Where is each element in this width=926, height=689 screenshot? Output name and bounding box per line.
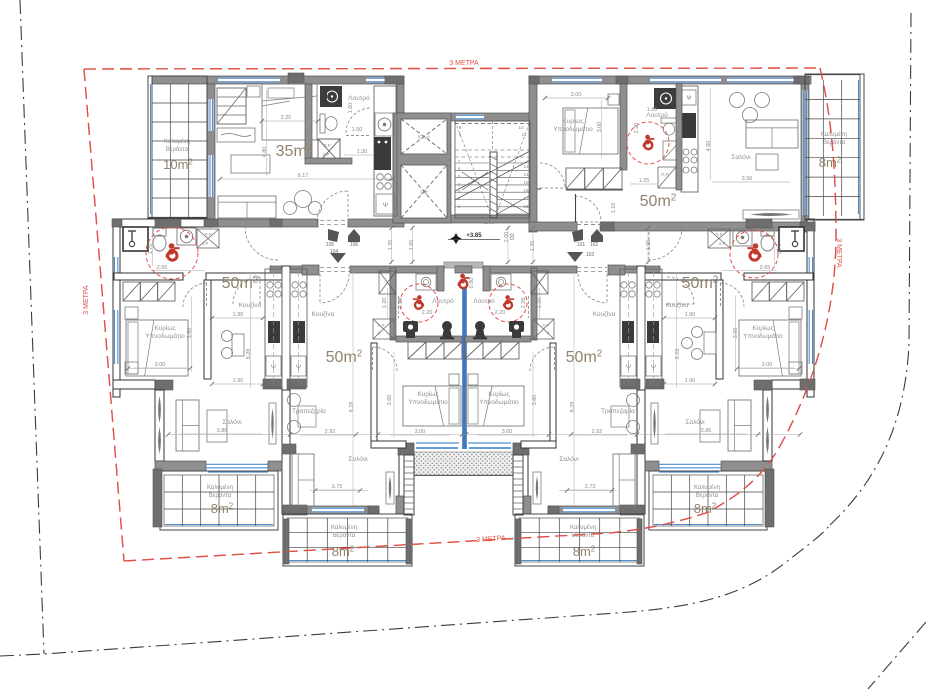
svg-text:104: 104: [330, 249, 339, 255]
svg-text:Καλυμένη: Καλυμένη: [207, 484, 233, 491]
svg-text:σ: σ: [547, 330, 550, 335]
svg-text:3.00: 3.00: [415, 429, 426, 435]
svg-text:6.17: 6.17: [298, 173, 309, 179]
svg-text:2.65: 2.65: [760, 265, 771, 271]
svg-text:18: 18: [523, 204, 529, 209]
svg-text:1.70: 1.70: [775, 244, 781, 255]
svg-text:Σαλόνι: Σαλόνι: [222, 418, 242, 426]
svg-text:σ.Ρ: σ.Ρ: [322, 152, 329, 157]
svg-text:0.80: 0.80: [469, 278, 475, 289]
svg-text:103: 103: [586, 252, 595, 258]
svg-text:8.29: 8.29: [570, 402, 576, 413]
svg-text:3.86: 3.86: [217, 428, 228, 434]
svg-text:17: 17: [523, 196, 529, 201]
svg-text:Καλυμένη: Καλυμένη: [331, 524, 357, 531]
svg-text:Κουζίνα: Κουζίνα: [239, 301, 262, 309]
svg-text:Π.Ρ: Π.Ρ: [716, 232, 723, 237]
svg-text:3.60: 3.60: [733, 328, 739, 339]
svg-text:3.00: 3.00: [597, 122, 603, 133]
svg-text:1.25: 1.25: [639, 178, 650, 184]
svg-text:4.80: 4.80: [706, 141, 712, 152]
svg-text:Υπνοδωμάτιο: Υπνοδωμάτιο: [553, 125, 593, 133]
svg-text:3.86: 3.86: [701, 428, 712, 434]
svg-text:8.29: 8.29: [349, 402, 355, 413]
svg-text:Υπνοδωμάτιο: Υπνοδωμάτιο: [479, 398, 519, 406]
svg-text:1.10: 1.10: [611, 203, 617, 214]
svg-text:101: 101: [577, 242, 586, 248]
svg-text:Κυρίως: Κυρίως: [154, 324, 175, 332]
svg-text:Λουτρό: Λουτρό: [348, 94, 370, 102]
svg-text:1.30: 1.30: [357, 149, 368, 155]
svg-text:3.00: 3.00: [502, 429, 513, 435]
svg-text:1.85: 1.85: [647, 107, 658, 113]
svg-text:2.65: 2.65: [157, 265, 168, 271]
svg-text:1.20: 1.20: [537, 298, 543, 309]
svg-text:Π.Ρ: Π.Ρ: [661, 172, 669, 177]
svg-text:σ.Ρ: σ.Ρ: [719, 241, 726, 246]
svg-text:8.28: 8.28: [675, 349, 681, 360]
svg-text:Π.Ρ: Π.Ρ: [323, 143, 331, 148]
svg-text:2.20: 2.20: [422, 310, 433, 316]
svg-text:1.70: 1.70: [148, 244, 154, 255]
svg-text:Lift: Lift: [420, 190, 428, 196]
svg-text:+3.85: +3.85: [466, 233, 482, 239]
svg-text:Λουτρό: Λουτρό: [432, 297, 454, 305]
svg-text:3.60: 3.60: [387, 395, 393, 406]
svg-text:Βεράντα: Βεράντα: [823, 139, 846, 146]
svg-text:Καλυμένη: Καλυμένη: [164, 138, 190, 145]
svg-text:2.92: 2.92: [325, 429, 336, 435]
svg-text:4.80: 4.80: [262, 147, 268, 158]
svg-text:Κυρίως: Κυρίως: [488, 390, 509, 398]
svg-text:Βεράντα: Βεράντα: [209, 492, 232, 499]
svg-text:3.73: 3.73: [585, 484, 596, 490]
svg-text:Ψ: Ψ: [383, 203, 388, 209]
svg-text:106: 106: [350, 242, 359, 248]
svg-text:1.50: 1.50: [352, 127, 363, 133]
svg-text:Σαλόνι: Σαλόνι: [685, 418, 705, 426]
svg-text:1.65: 1.65: [409, 240, 415, 251]
svg-text:Σαλόνι: Σαλόνι: [731, 153, 751, 161]
svg-text:Π.Ρ: Π.Ρ: [378, 323, 385, 328]
svg-text:Π.Ρ: Π.Ρ: [205, 232, 212, 237]
svg-text:1.35: 1.35: [388, 240, 394, 251]
svg-text:σ: σ: [378, 330, 381, 335]
svg-text:1.90: 1.90: [233, 312, 244, 318]
svg-text:3.60: 3.60: [187, 328, 193, 339]
svg-text:2.60: 2.60: [484, 220, 495, 226]
svg-text:11: 11: [522, 132, 527, 137]
svg-text:2.00: 2.00: [504, 232, 510, 243]
svg-text:16: 16: [523, 188, 529, 193]
svg-text:Κενό: Κενό: [418, 134, 430, 141]
svg-text:1.20: 1.20: [454, 265, 465, 271]
svg-text:Υπνοδωμάτιο: Υπνοδωμάτιο: [145, 332, 185, 340]
svg-text:1.90: 1.90: [685, 312, 696, 318]
svg-text:8.28: 8.28: [246, 349, 252, 360]
svg-text:2.28: 2.28: [521, 298, 527, 309]
svg-text:10: 10: [518, 125, 524, 130]
svg-text:3 ΜΕΤΡΑ: 3 ΜΕΤΡΑ: [449, 60, 479, 67]
svg-text:Κουζίνα: Κουζίνα: [666, 301, 689, 309]
svg-text:3 ΜΕΤΡΑ: 3 ΜΕΤΡΑ: [83, 285, 90, 315]
svg-text:Υπνοδωμάτιο: Υπνοδωμάτιο: [408, 398, 448, 406]
svg-text:Υπνοδωμάτιο: Υπνοδωμάτιο: [743, 332, 783, 340]
svg-text:Λουτρό: Λουτρό: [473, 297, 495, 305]
svg-text:3.00: 3.00: [571, 92, 582, 98]
svg-text:Ψ: Ψ: [686, 96, 691, 102]
svg-text:Βεράντα: Βεράντα: [696, 492, 719, 499]
svg-text:2.20: 2.20: [495, 310, 506, 316]
svg-text:13: 13: [523, 164, 529, 169]
svg-text:Σαλόνι: Σαλόνι: [559, 455, 579, 463]
svg-text:Κουζίνα: Κουζίνα: [593, 310, 616, 318]
svg-text:Π.Ρ: Π.Ρ: [543, 323, 550, 328]
svg-text:14: 14: [523, 172, 529, 177]
svg-text:2.92: 2.92: [592, 429, 603, 435]
svg-text:Σαλόνι: Σαλόνι: [348, 455, 368, 463]
svg-text:Βεράντα: Βεράντα: [333, 532, 356, 539]
svg-text:Τραπεζαρία: Τραπεζαρία: [601, 407, 635, 415]
svg-text:2.20: 2.20: [634, 123, 640, 134]
svg-text:Κουζίνα: Κουζίνα: [312, 310, 335, 318]
svg-text:3.00: 3.00: [155, 362, 166, 368]
svg-text:1.90: 1.90: [685, 378, 696, 384]
svg-text:102: 102: [590, 242, 599, 248]
svg-text:2.20: 2.20: [281, 115, 292, 121]
svg-text:3.00: 3.00: [762, 362, 773, 368]
svg-text:Βεράντα: Βεράντα: [166, 146, 189, 153]
svg-text:Κυρίως: Κυρίως: [417, 390, 438, 398]
svg-text:Κυρίως: Κυρίως: [562, 117, 583, 125]
svg-text:1.60: 1.60: [348, 103, 354, 114]
svg-text:Καλυμένη: Καλυμένη: [694, 484, 720, 491]
svg-text:15: 15: [523, 180, 529, 185]
svg-text:Κυρίως: Κυρίως: [752, 324, 773, 332]
svg-text:1.90: 1.90: [233, 378, 244, 384]
svg-text:Καλυμένη: Καλυμένη: [821, 131, 847, 138]
svg-text:8: 8: [509, 232, 514, 242]
svg-text:σ.Ρ: σ.Ρ: [202, 241, 209, 246]
svg-text:Τραπεζαρία: Τραπεζαρία: [292, 407, 326, 415]
svg-text:105: 105: [326, 242, 335, 248]
svg-text:1.20: 1.20: [382, 298, 388, 309]
svg-text:3.56: 3.56: [742, 176, 753, 182]
svg-text:Καλυμένη: Καλυμένη: [570, 524, 596, 531]
svg-text:3.73: 3.73: [332, 484, 343, 490]
svg-text:1.35: 1.35: [646, 240, 652, 251]
